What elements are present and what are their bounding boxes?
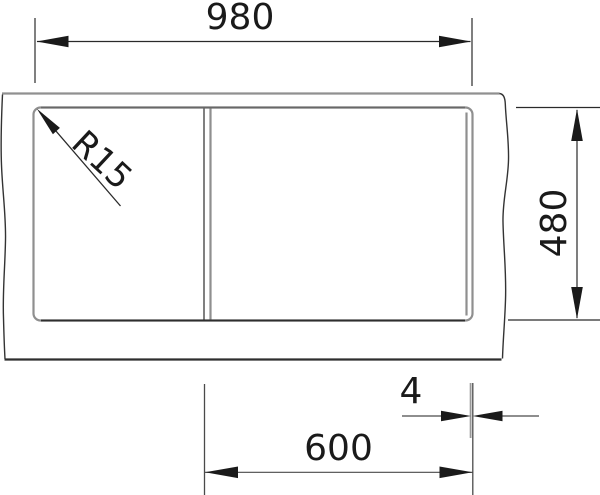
dim-label-480: 480 [534,189,575,258]
arrowhead-480-top [571,109,583,141]
dimension-overall-depth: 480 [508,108,600,321]
drawing-canvas: 980 480 R15 600 [0,0,600,495]
arrowhead-980-right [439,36,471,47]
arrowhead-980-left [37,36,69,47]
sink-dimension-drawing: 980 480 R15 600 [0,0,600,495]
arrowhead-600-left [205,467,238,479]
radius-callout: R15 [37,109,140,206]
sink-outline [1,94,508,360]
arrowhead-4-right [473,411,503,421]
arrowhead-r15 [37,109,60,135]
dimension-bowl-width: 600 [205,383,473,495]
dim-label-980: 980 [206,0,275,38]
arrowhead-4-left [441,411,471,421]
arrowhead-600-right [440,467,473,479]
arrowhead-480-bottom [571,287,583,319]
dim-label-r15: R15 [64,123,140,198]
break-edge-right [500,94,509,359]
dimension-overall-width: 980 [35,0,472,86]
break-edge-left [1,95,5,360]
dim-label-600: 600 [304,428,373,469]
dim-label-4: 4 [400,371,423,412]
dimension-rim-offset: 4 [400,371,539,438]
